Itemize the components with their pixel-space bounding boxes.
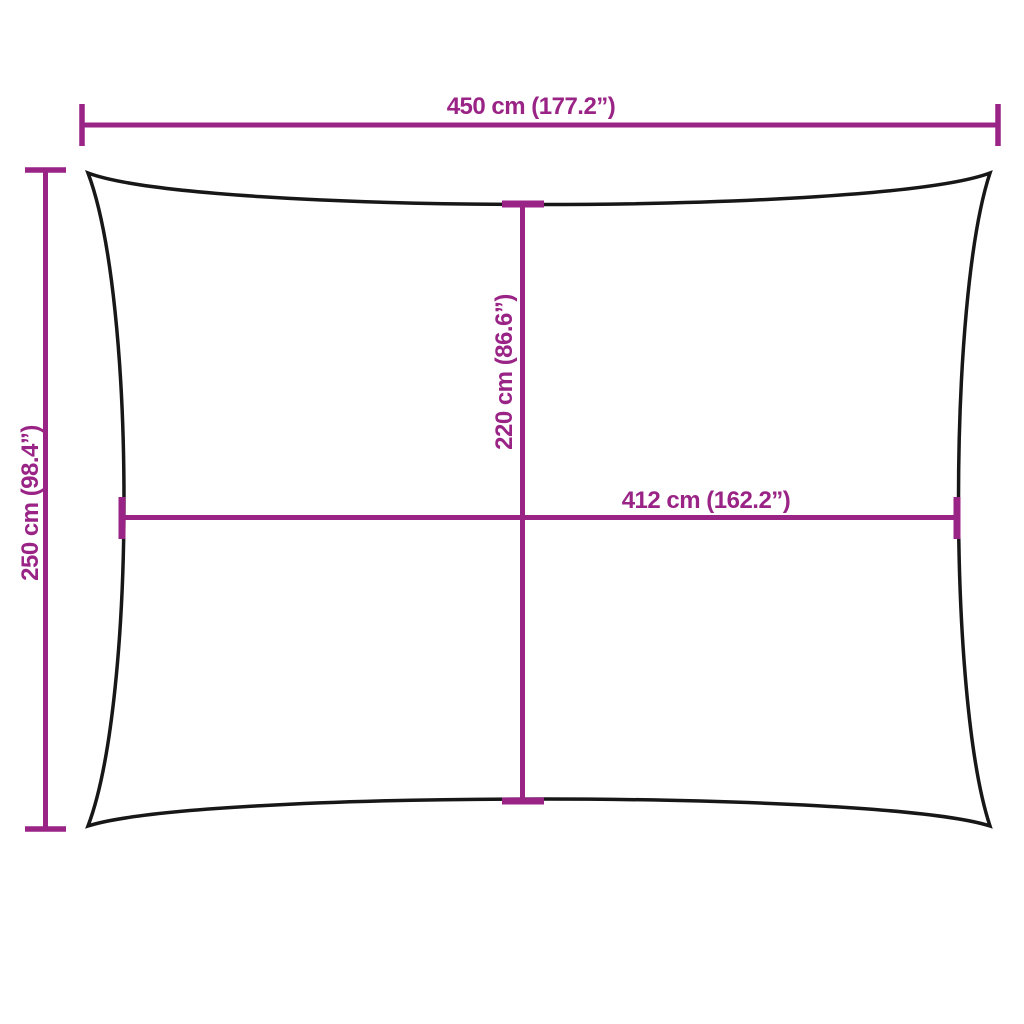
diagram-canvas: 450 cm (177.2”) 250 cm (98.4”) 220 cm (8… [0,0,1024,1024]
inner-width-label: 412 cm (162.2”) [622,487,791,514]
left-height-label: 250 cm (98.4”) [17,425,44,581]
dimension-diagram: 450 cm (177.2”) 250 cm (98.4”) 220 cm (8… [0,0,1024,1024]
sail-outline [88,173,990,826]
inner-height-label: 220 cm (86.6”) [491,294,518,450]
top-width-label: 450 cm (177.2”) [447,93,616,120]
